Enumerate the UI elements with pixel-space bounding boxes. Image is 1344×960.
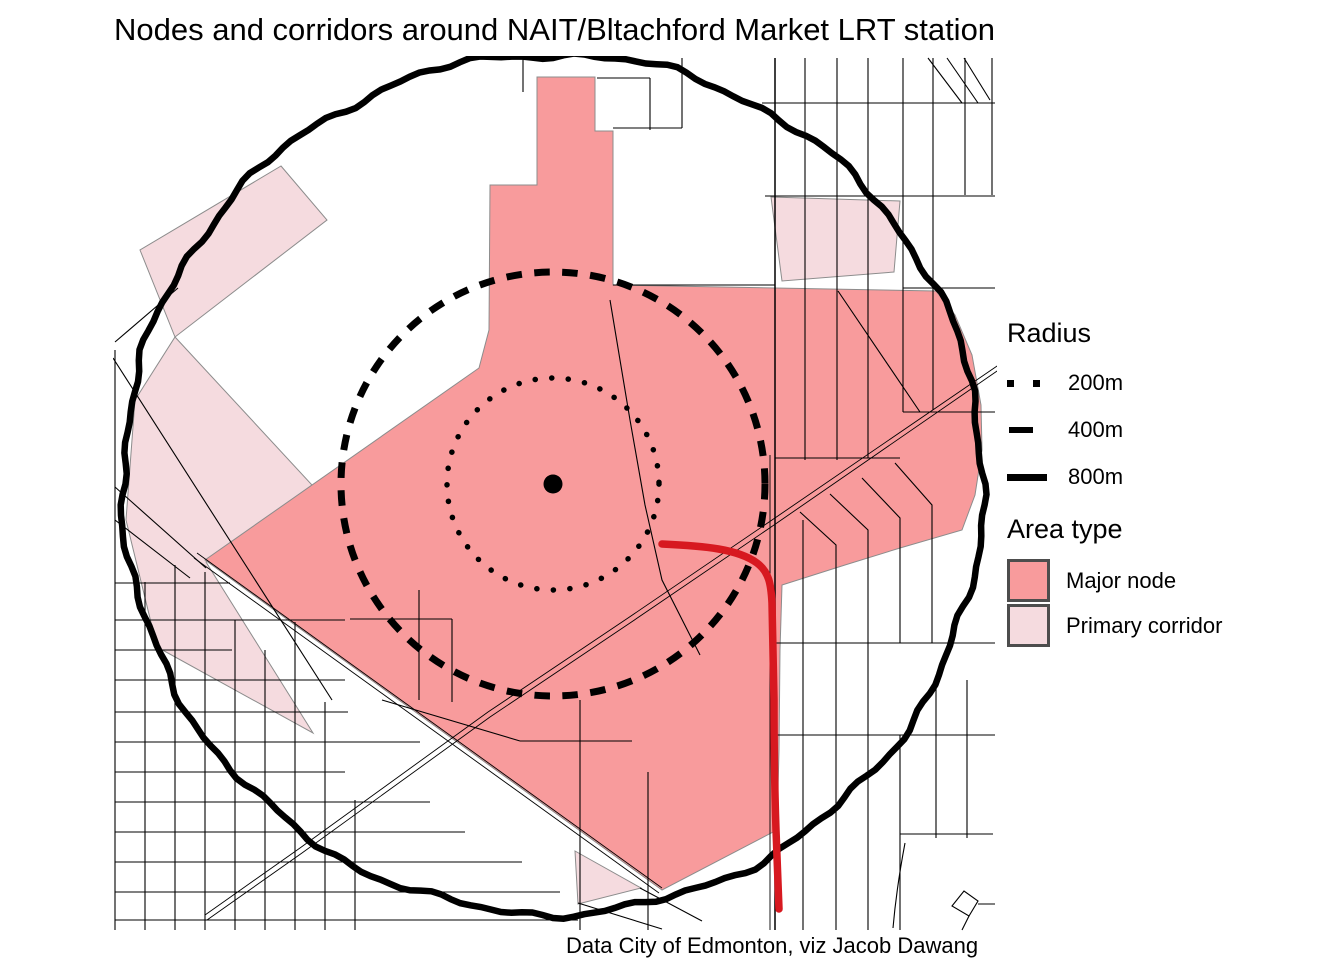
map-canvas xyxy=(0,0,1344,960)
legend-item-200m: 200m xyxy=(1007,371,1123,395)
legend-item-400m: 400m xyxy=(1007,418,1123,442)
solid-line-key-icon xyxy=(1007,474,1059,481)
major-node-area xyxy=(205,77,982,890)
data-source-caption: Data City of Edmonton, viz Jacob Dawang xyxy=(566,933,978,959)
major-node-swatch-icon xyxy=(1007,559,1050,602)
legend-radius-title: Radius xyxy=(1007,318,1091,349)
dotted-line-key-icon xyxy=(1007,380,1059,387)
legend-item-800m: 800m xyxy=(1007,465,1123,489)
legend-item-major-node: Major node xyxy=(1007,559,1176,602)
dashed-line-key-icon xyxy=(1007,427,1059,433)
station-center-dot xyxy=(544,475,563,494)
primary-corridor-swatch-icon xyxy=(1007,604,1050,647)
legend-area-type-title: Area type xyxy=(1007,514,1123,545)
legend-item-primary-corridor: Primary corridor xyxy=(1007,604,1222,647)
